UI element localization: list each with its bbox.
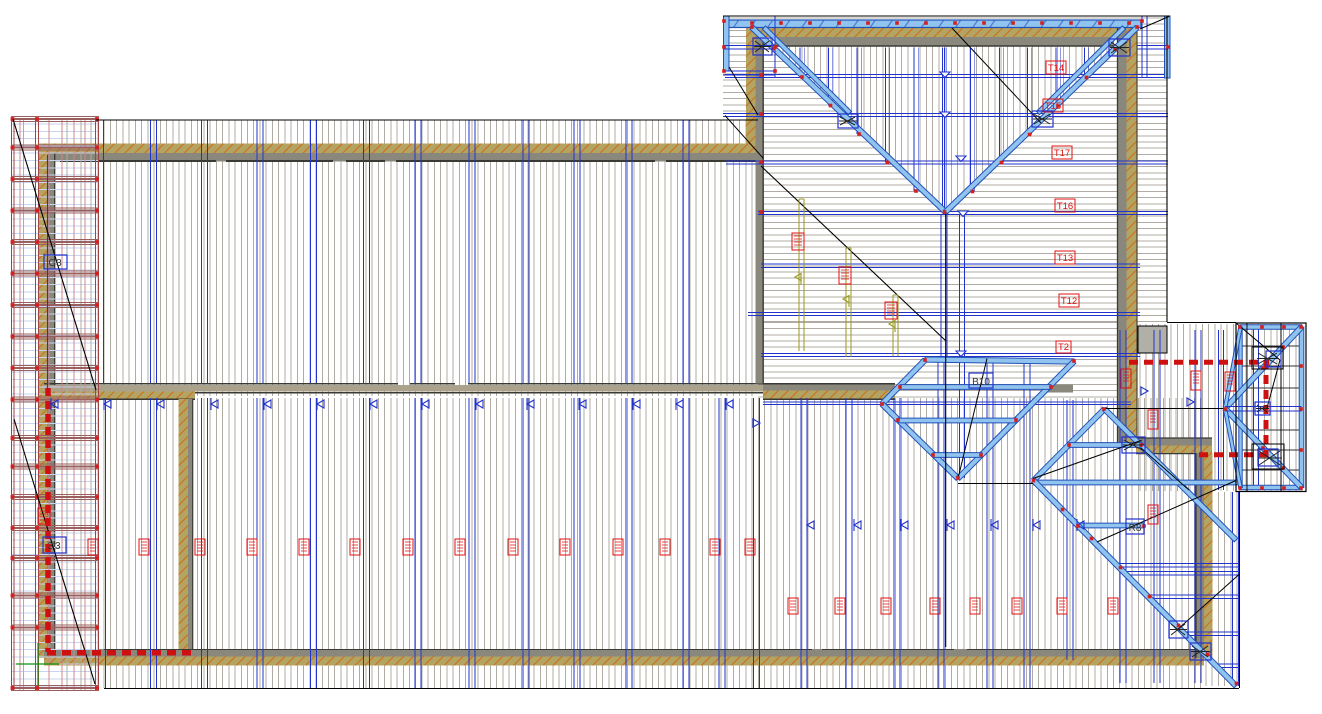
svg-text:B10: B10: [972, 377, 990, 388]
svg-text:T17: T17: [1054, 148, 1070, 159]
svg-text:G3: G3: [48, 258, 62, 269]
svg-text:T2: T2: [1058, 342, 1069, 353]
svg-text:T16: T16: [1057, 201, 1073, 212]
svg-text:3'3: 3'3: [47, 541, 60, 552]
svg-text:R8: R8: [1129, 523, 1142, 534]
svg-text:T15: T15: [1045, 101, 1061, 112]
svg-text:T13: T13: [1057, 253, 1073, 264]
svg-text:T14: T14: [1048, 63, 1064, 74]
svg-text:T12: T12: [1061, 296, 1077, 307]
